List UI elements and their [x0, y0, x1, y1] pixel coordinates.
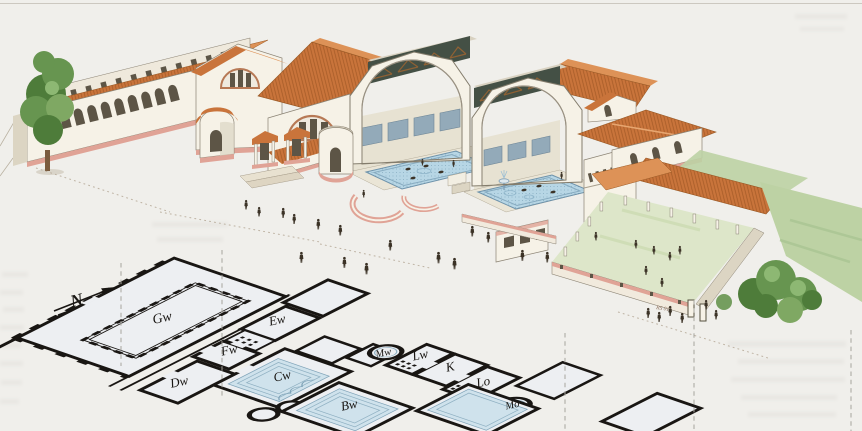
- scanned-book-figure: RS 01: [0, 0, 862, 431]
- round-vestibule: [319, 126, 353, 183]
- bath-reconstruction-figure: RS 01: [0, 0, 862, 431]
- corner-gate: [688, 300, 694, 317]
